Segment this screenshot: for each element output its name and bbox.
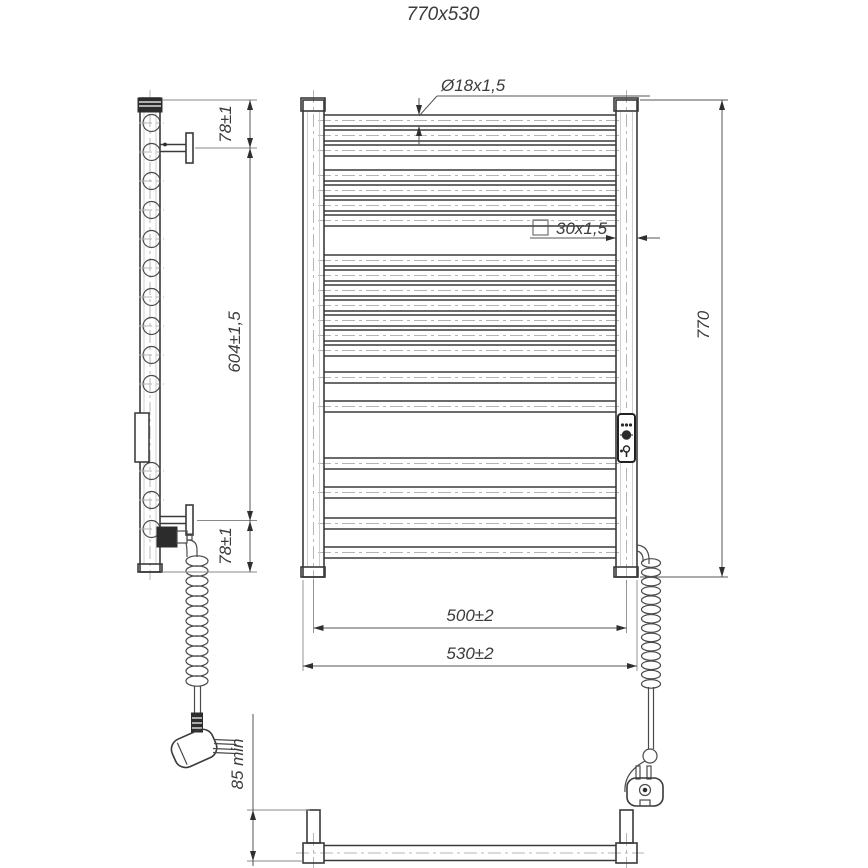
label-top-bracket-offset: 78±1 [216, 105, 235, 143]
label-bracket-span: 604±1,5 [225, 311, 244, 373]
controller [618, 414, 635, 462]
label-bottom-bracket-offset: 78±1 [216, 527, 235, 565]
label-post-profile: 30x1,5 [556, 219, 608, 238]
label-tube-diameter: Ø18x1,5 [440, 76, 506, 95]
label-overall-width: 530±2 [446, 644, 494, 663]
label-wall-clearance: 85 min [228, 738, 247, 789]
label-overall-height: 770 [694, 310, 713, 339]
right-plug [627, 766, 663, 806]
dimension-wall-clearance: 85 min [228, 714, 310, 866]
front-view [301, 90, 638, 585]
side-top-cap [138, 98, 162, 112]
top-bracket [160, 133, 193, 163]
dimension-widths: 500±2 530±2 [303, 580, 637, 671]
drawing-svg: 770x530 [0, 0, 868, 868]
left-power-cord-coil [186, 556, 208, 686]
drawing-title: 770x530 [407, 4, 480, 25]
controller-led [621, 424, 623, 426]
rungs [318, 115, 622, 558]
right-power-cord [625, 545, 663, 806]
right-power-cord-coil [642, 559, 661, 689]
label-rung-span: 500±2 [446, 606, 494, 625]
bottom-view [296, 810, 644, 868]
side-controller-box [135, 413, 149, 462]
left-plug [168, 726, 236, 771]
controller-knob [622, 431, 630, 439]
heating-element [157, 527, 197, 557]
technical-drawing-towel-rail: 770x530 [0, 0, 868, 868]
dimension-overall-height: 770 [640, 100, 728, 577]
dimension-post-profile: 30x1,5 [530, 219, 660, 241]
side-view [135, 90, 236, 771]
dimension-left-column: 78±1 604±1,5 78±1 [162, 100, 257, 572]
